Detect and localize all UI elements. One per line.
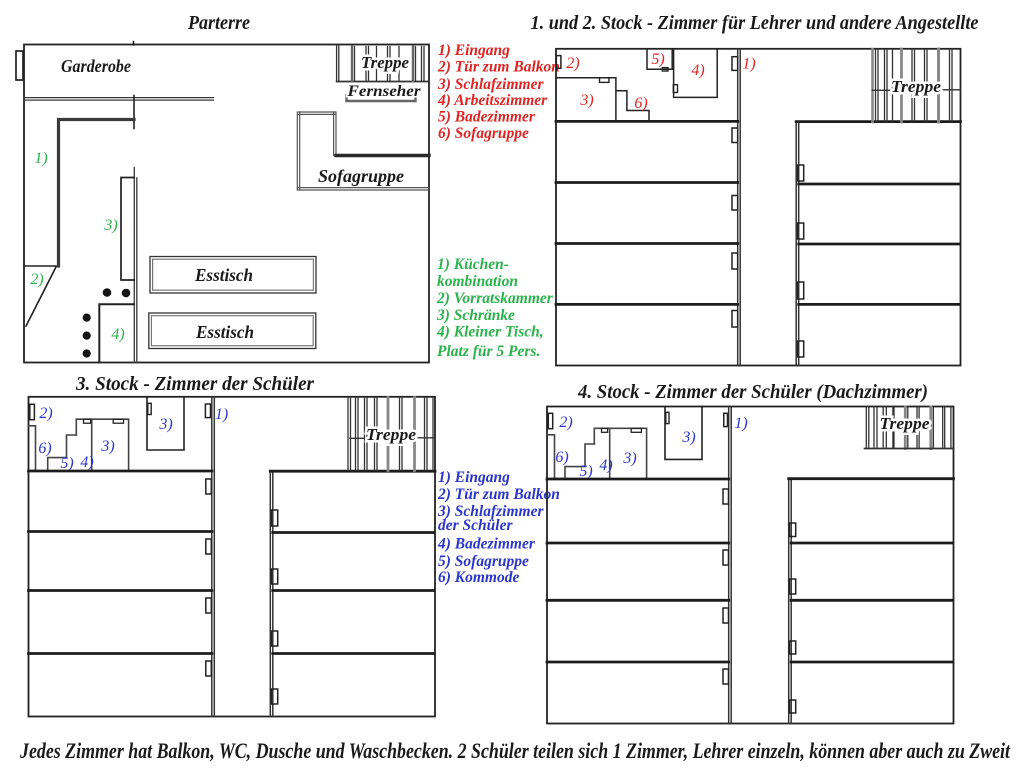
svg-text:1): 1) <box>215 406 228 423</box>
svg-text:2): 2) <box>566 55 579 72</box>
svg-text:5) Badezimmer: 5) Badezimmer <box>438 109 536 126</box>
svg-text:4): 4) <box>691 62 704 79</box>
svg-text:1) Eingang: 1) Eingang <box>438 42 510 59</box>
svg-text:3): 3) <box>103 217 117 234</box>
svg-text:3) Schränke: 3) Schränke <box>436 307 515 324</box>
svg-text:4): 4) <box>599 457 612 474</box>
svg-text:3): 3) <box>158 416 172 433</box>
svg-text:Garderobe: Garderobe <box>61 56 131 76</box>
svg-text:1): 1) <box>742 56 755 73</box>
svg-text:1): 1) <box>34 150 47 167</box>
svg-text:2): 2) <box>559 414 572 431</box>
svg-text:Jedes Zimmer hat Balkon, WC, D: Jedes Zimmer hat Balkon, WC, Dusche und … <box>19 738 1011 763</box>
svg-text:3) Schlafzimmer: 3) Schlafzimmer <box>437 76 544 93</box>
svg-text:Parterre: Parterre <box>187 12 250 34</box>
svg-text:1): 1) <box>734 415 747 432</box>
svg-text:4): 4) <box>80 454 93 471</box>
svg-text:4) Kleiner Tisch,: 4) Kleiner Tisch, <box>436 324 544 341</box>
svg-text:6): 6) <box>38 440 51 457</box>
svg-text:2): 2) <box>30 271 43 288</box>
svg-text:4) Arbeitszimmer: 4) Arbeitszimmer <box>437 92 548 109</box>
svg-text:4. Stock - Zimmer der Schüler: 4. Stock - Zimmer der Schüler (Dachzimme… <box>577 381 928 403</box>
svg-text:1. und 2. Stock - Zimmer für L: 1. und 2. Stock - Zimmer für Lehrer und … <box>531 12 979 34</box>
svg-text:2) Vorratskammer: 2) Vorratskammer <box>436 290 554 307</box>
svg-text:1) Küchen-: 1) Küchen- <box>437 256 509 273</box>
svg-text:5): 5) <box>651 51 664 68</box>
svg-text:6): 6) <box>555 449 568 466</box>
svg-text:Treppe: Treppe <box>891 77 941 96</box>
svg-text:3): 3) <box>681 429 695 446</box>
svg-text:3): 3) <box>622 450 636 467</box>
svg-text:1) Eingang: 1) Eingang <box>438 469 510 486</box>
svg-text:2) Tür zum Balkon: 2) Tür zum Balkon <box>437 486 560 503</box>
svg-text:2): 2) <box>39 405 52 422</box>
svg-text:Fernseher: Fernseher <box>346 83 421 100</box>
svg-text:6) Kommode: 6) Kommode <box>438 569 519 586</box>
svg-text:4): 4) <box>111 326 124 343</box>
svg-text:6): 6) <box>634 95 647 112</box>
svg-text:der Schüler: der Schüler <box>438 517 513 534</box>
svg-text:Treppe: Treppe <box>361 53 409 72</box>
svg-text:5): 5) <box>579 463 592 480</box>
svg-text:5): 5) <box>60 455 73 472</box>
svg-text:Treppe: Treppe <box>880 414 930 433</box>
svg-text:6) Sofagruppe: 6) Sofagruppe <box>438 125 529 142</box>
svg-text:5) Sofagruppe: 5) Sofagruppe <box>438 553 529 570</box>
svg-text:3): 3) <box>100 438 114 455</box>
svg-text:3): 3) <box>579 92 593 109</box>
svg-text:4) Badezimmer: 4) Badezimmer <box>437 536 536 553</box>
svg-text:3. Stock - Zimmer der Schüler: 3. Stock - Zimmer der Schüler <box>75 373 314 395</box>
svg-text:Platz für 5 Pers.: Platz für 5 Pers. <box>437 343 540 360</box>
svg-text:Sofagruppe: Sofagruppe <box>318 166 404 186</box>
svg-text:Treppe: Treppe <box>366 425 416 444</box>
svg-text:Esstisch: Esstisch <box>195 322 254 342</box>
svg-text:Esstisch: Esstisch <box>194 265 253 285</box>
svg-text:2) Tür zum Balkon: 2) Tür zum Balkon <box>437 59 560 76</box>
svg-text:kombination: kombination <box>437 273 518 290</box>
